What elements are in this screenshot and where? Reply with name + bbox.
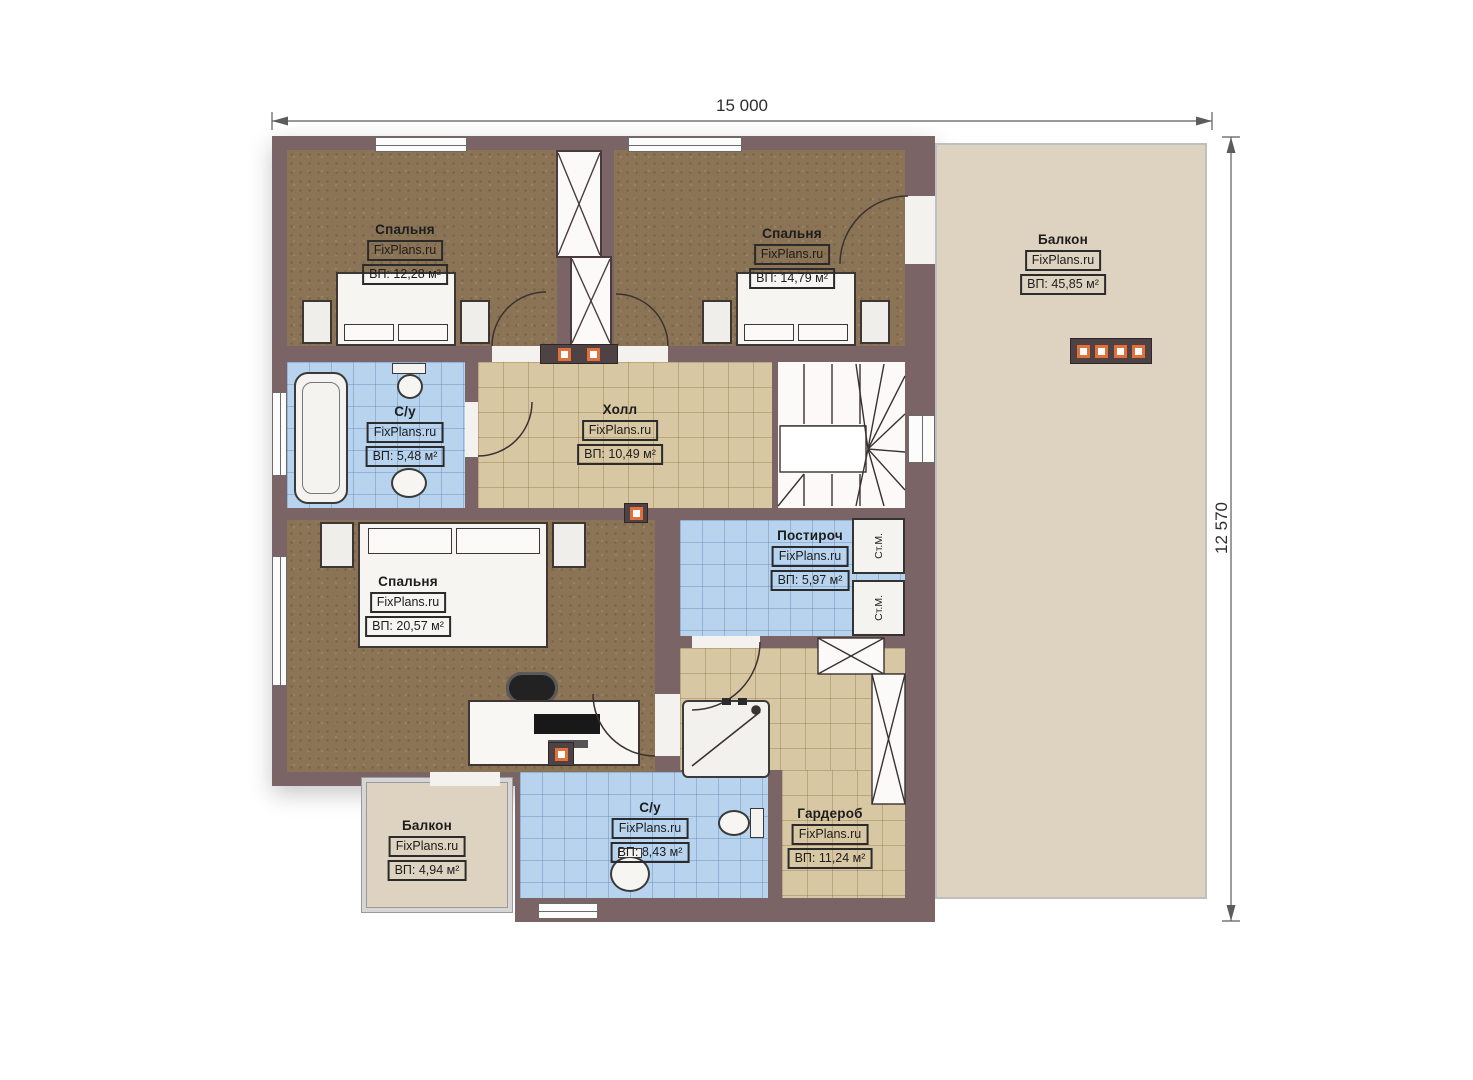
shower-tray <box>682 700 770 778</box>
window-stairs <box>908 415 935 463</box>
staircase <box>778 362 905 508</box>
pillow <box>344 324 394 341</box>
room-area: ВП: 8,43 м² <box>611 842 690 863</box>
toilet-tank <box>392 363 426 374</box>
nightstand <box>860 300 890 344</box>
room-name: Спальня <box>762 226 822 241</box>
door-opening-bedroom-top-left <box>492 346 544 362</box>
watermark: FixPlans.ru <box>772 546 849 567</box>
dimension-width: 15 000 <box>716 96 768 116</box>
room-label-hall: Холл FixPlans.ru ВП: 10,49 м² <box>577 402 663 465</box>
pillow <box>798 324 848 341</box>
nightstand <box>552 522 586 568</box>
nightstand <box>460 300 490 344</box>
pillow <box>368 528 452 554</box>
room-name: Балкон <box>1038 232 1088 247</box>
door-opening-bathroom-upper <box>465 402 478 457</box>
monitor-icon <box>534 714 600 734</box>
washer-label: Ст.М. <box>873 533 885 559</box>
room-label-bathroom-upper: С/у FixPlans.ru ВП: 5,48 м² <box>366 404 445 467</box>
nightstand <box>702 300 732 344</box>
room-area: ВП: 11,24 м² <box>788 848 873 869</box>
room-area: ВП: 10,49 м² <box>577 444 663 465</box>
room-name: С/у <box>394 404 416 419</box>
room-name: С/у <box>639 800 661 815</box>
room-name: Спальня <box>375 222 435 237</box>
door-opening-bedroom-top-middle <box>616 346 668 362</box>
room-name: Спальня <box>378 574 438 589</box>
door-opening-bedroom-bottom <box>655 694 680 756</box>
washing-machine: Ст.М. <box>852 580 905 636</box>
toilet-tank <box>750 808 764 838</box>
watermark: FixPlans.ru <box>1025 250 1102 271</box>
pillow <box>398 324 448 341</box>
nightstand <box>302 300 332 344</box>
vent-shaft-upper <box>556 150 602 258</box>
room-area: ВП: 12,28 м² <box>362 264 448 285</box>
window-top-2 <box>628 137 742 152</box>
window-left-1 <box>272 392 287 476</box>
door-opening-balcony-bottom-left <box>430 772 500 786</box>
radiator-icon <box>548 742 574 766</box>
watermark: FixPlans.ru <box>367 240 444 261</box>
room-area: ВП: 5,48 м² <box>366 446 445 467</box>
watermark: FixPlans.ru <box>582 420 659 441</box>
room-area: ВП: 45,85 м² <box>1020 274 1106 295</box>
room-name: Постироч <box>777 528 843 543</box>
door-opening-balcony-right <box>905 196 935 264</box>
toilet-icon <box>397 374 423 399</box>
washer-label: Ст.М. <box>873 595 885 621</box>
watermark: FixPlans.ru <box>754 244 831 265</box>
room-area: ВП: 4,94 м² <box>388 860 467 881</box>
room-area: ВП: 5,97 м² <box>771 570 850 591</box>
radiator-icon <box>1070 338 1152 364</box>
room-label-laundry: Постироч FixPlans.ru ВП: 5,97 м² <box>771 528 850 591</box>
room-name: Гардероб <box>797 806 862 821</box>
watermark: FixPlans.ru <box>370 592 447 613</box>
room-label-bathroom-lower: С/у FixPlans.ru ВП: 8,43 м² <box>611 800 690 863</box>
washing-machine: Ст.М. <box>852 518 905 574</box>
pillow <box>744 324 794 341</box>
vent-shaft-lower <box>570 256 612 346</box>
room-label-wardrobe: Гардероб FixPlans.ru ВП: 11,24 м² <box>788 806 873 869</box>
radiator-icon <box>624 503 648 523</box>
nightstand <box>320 522 354 568</box>
watermark: FixPlans.ru <box>367 422 444 443</box>
room-label-bedroom-bottom: Спальня FixPlans.ru ВП: 20,57 м² <box>365 574 451 637</box>
sink-icon <box>391 468 427 498</box>
room-label-balcony-right: Балкон FixPlans.ru ВП: 45,85 м² <box>1020 232 1106 295</box>
radiator-icon <box>540 344 618 364</box>
door-opening-wardrobe <box>692 636 760 648</box>
room-name: Балкон <box>402 818 452 833</box>
room-label-balcony-bottom-left: Балкон FixPlans.ru ВП: 4,94 м² <box>388 818 467 881</box>
room-label-bedroom-top-left: Спальня FixPlans.ru ВП: 12,28 м² <box>362 222 448 285</box>
pillow <box>456 528 540 554</box>
room-area: ВП: 20,57 м² <box>365 616 451 637</box>
watermark: FixPlans.ru <box>612 818 689 839</box>
window-top-1 <box>375 137 467 152</box>
bathtub <box>294 372 348 504</box>
floor-plan: Ст.М. Ст.М. <box>0 0 1473 1080</box>
watermark: FixPlans.ru <box>792 824 869 845</box>
dimension-height: 12 570 <box>1212 502 1232 554</box>
room-name: Холл <box>603 402 638 417</box>
watermark: FixPlans.ru <box>389 836 466 857</box>
toilet-icon <box>718 810 750 836</box>
window-bottom <box>538 903 598 919</box>
room-label-bedroom-top-middle: Спальня FixPlans.ru ВП: 14,79 м² <box>749 226 835 289</box>
window-left-2 <box>272 556 287 686</box>
room-area: ВП: 14,79 м² <box>749 268 835 289</box>
